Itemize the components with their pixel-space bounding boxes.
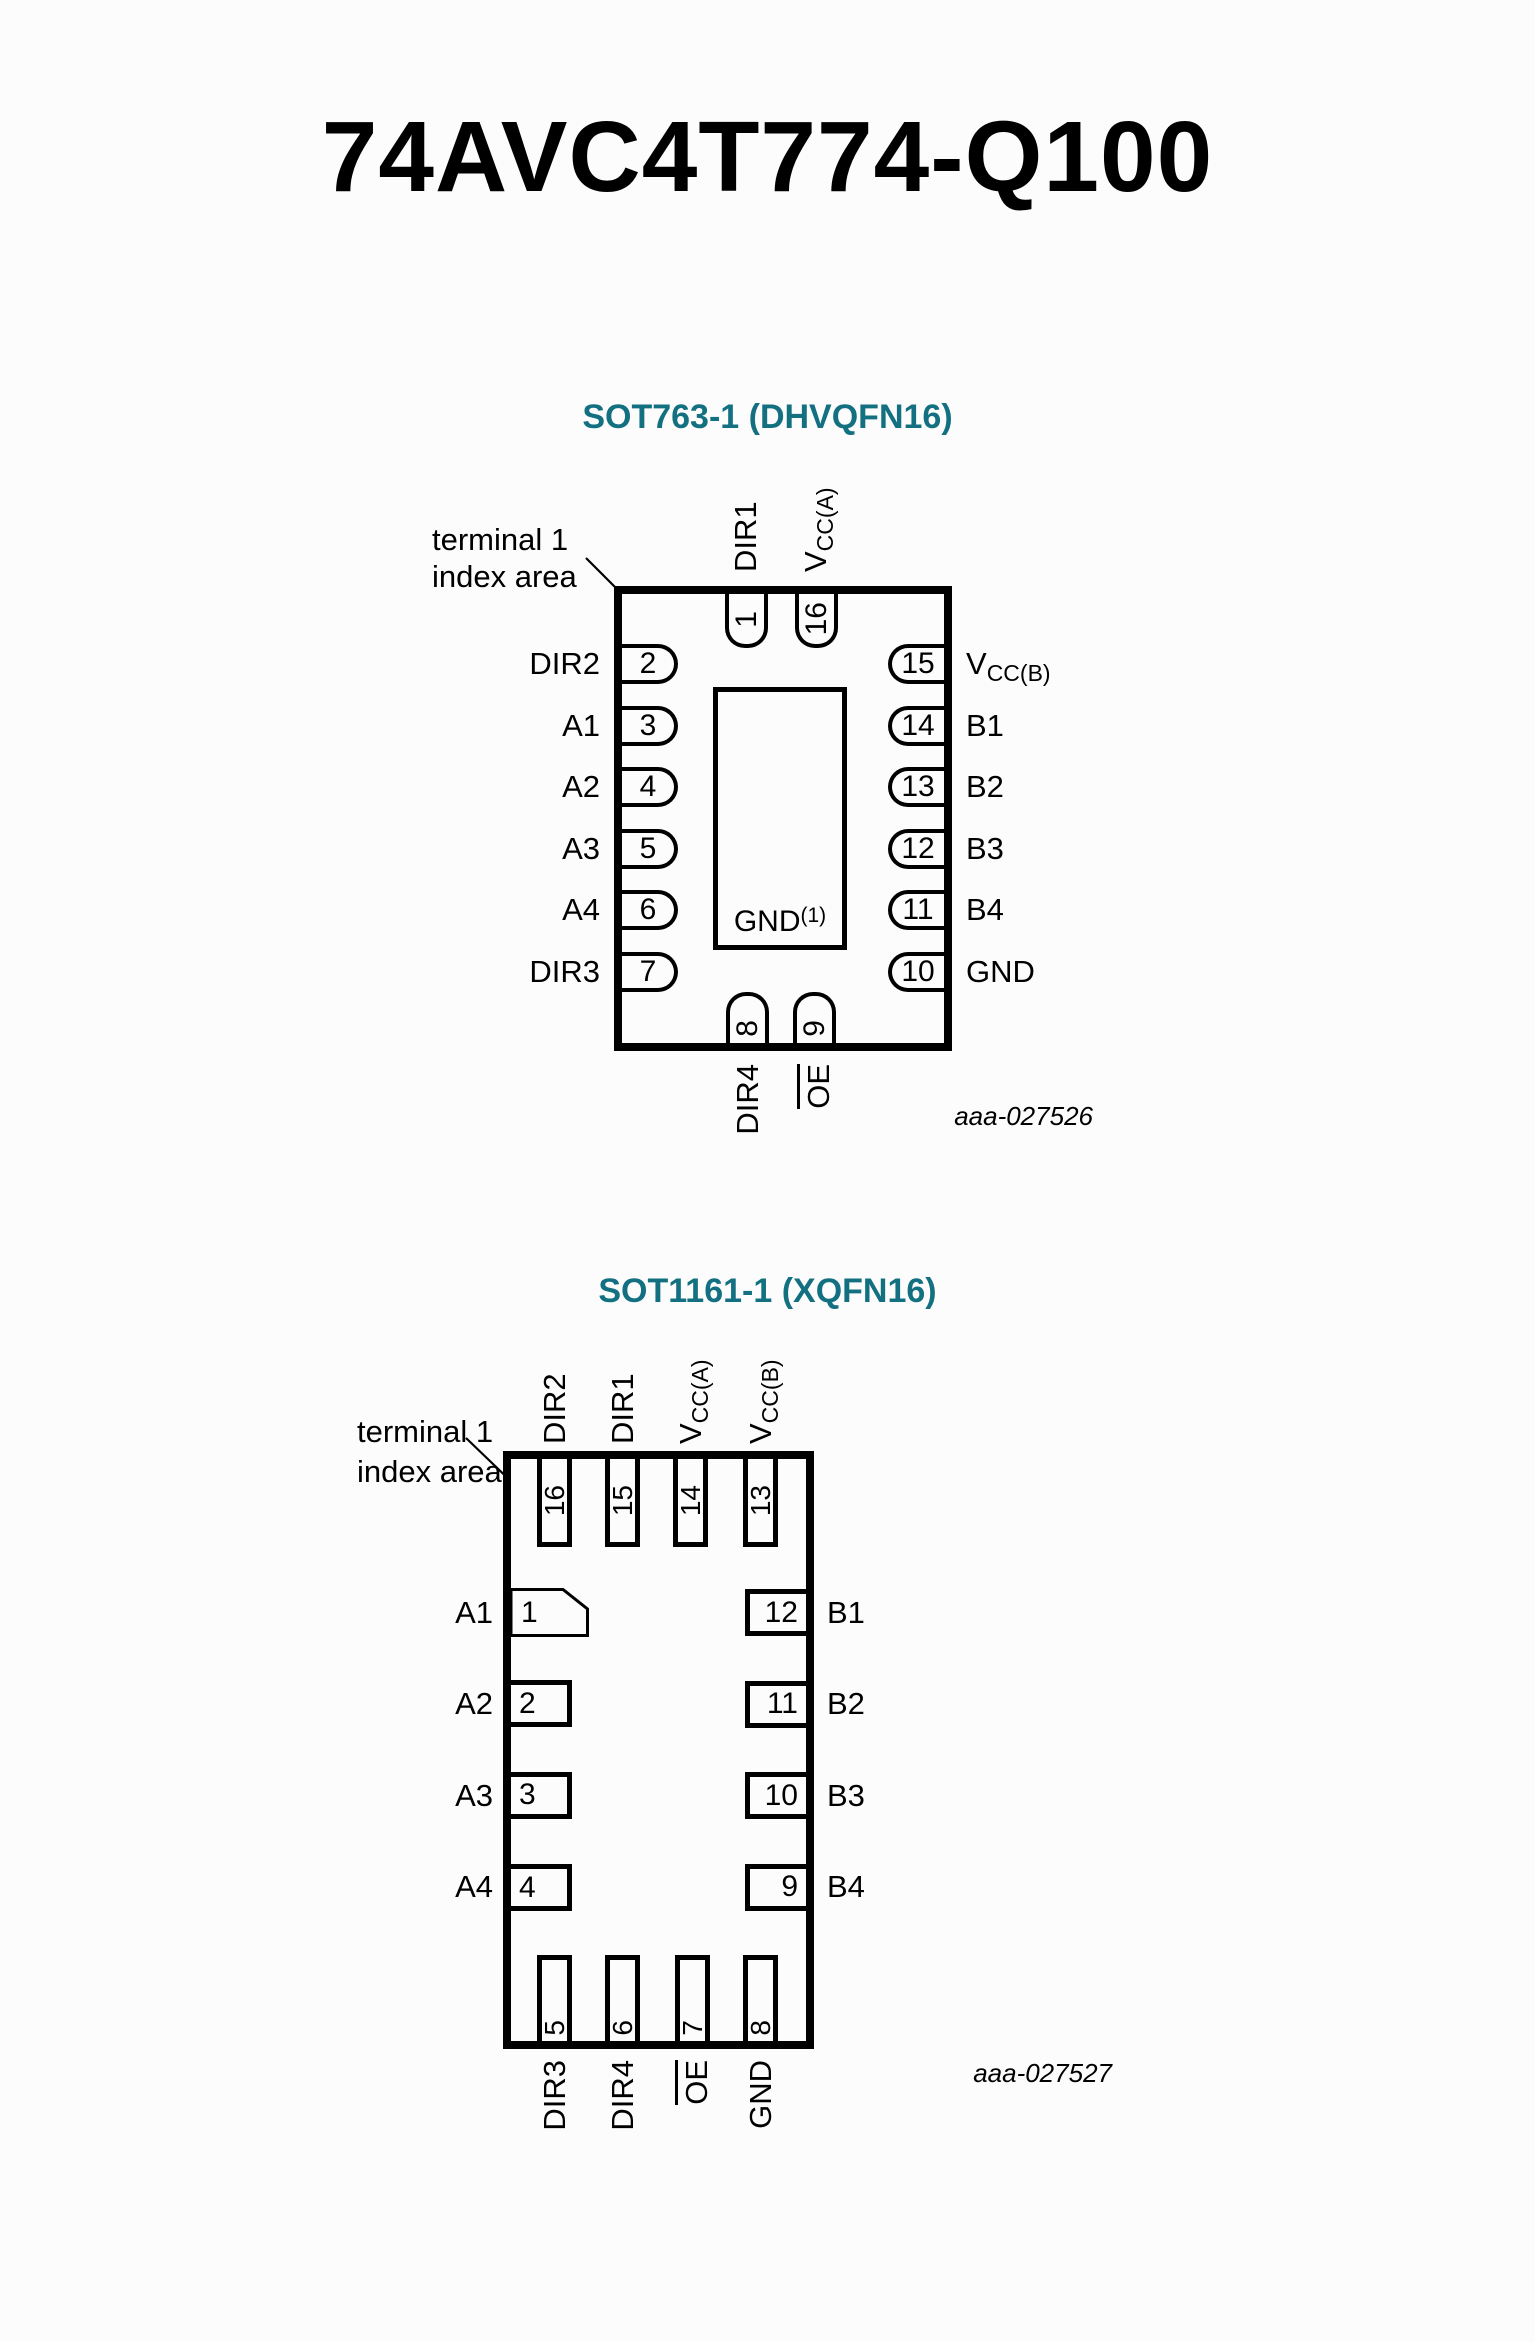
pin-15-number: 15 (901, 647, 934, 681)
label-gnd: GND (966, 953, 1035, 991)
pin-1-number: 1 (732, 611, 762, 628)
label-oe-text: OE (797, 1064, 836, 1109)
vcc-sub: CC(A) (812, 487, 838, 551)
pin-1: 1 (511, 1588, 589, 1637)
pin-6: 6 (605, 1955, 640, 2041)
label-dir4: DIR4 (605, 2060, 641, 2300)
pin-14-number: 14 (677, 1485, 705, 1516)
pin-15-number: 15 (609, 1485, 637, 1516)
pin-11-number: 11 (767, 1687, 798, 1721)
center-pad-label: GND(1) (718, 904, 842, 939)
pin-16-number: 16 (802, 602, 832, 635)
label-dir2: DIR2 (330, 645, 600, 683)
pin-2-number: 2 (640, 647, 657, 681)
label-dir3: DIR3 (537, 2060, 573, 2300)
pin-15: 15 (605, 1459, 640, 1547)
label-dir1: DIR1 (605, 1204, 641, 1444)
label-a3: A3 (253, 1777, 493, 1815)
pin-12: 12 (745, 1589, 806, 1636)
label-b3: B3 (966, 830, 1004, 868)
label-a2: A2 (253, 1685, 493, 1723)
package-outline-xqfn16: 16 15 14 13 1 2 3 4 12 11 10 9 5 6 7 (503, 1451, 814, 2049)
pin-16: 16 (537, 1459, 572, 1547)
pin-10: 10 (888, 952, 944, 992)
pin-3: 3 (622, 706, 678, 746)
index-note-line1: terminal 1 (432, 521, 577, 558)
vcc-base: V (798, 551, 833, 572)
label-b1: B1 (827, 1594, 865, 1632)
label-dir2: DIR2 (537, 1204, 573, 1444)
label-dir3-text: DIR3 (537, 2060, 572, 2131)
pin-14: 14 (888, 706, 944, 746)
figure1-heading: SOT763-1 (DHVQFN16) (0, 398, 1535, 437)
pin-11: 11 (888, 890, 944, 930)
vccb-base: V (743, 1423, 778, 1444)
figure2-code: aaa-027527 (862, 2058, 1112, 2089)
label-b1: B1 (966, 707, 1004, 745)
label-dir1: DIR1 (728, 332, 764, 572)
label-dir4-text: DIR4 (730, 1064, 765, 1135)
package-outline-dhvqfn16: 1 16 2 3 4 5 6 7 15 14 13 12 11 10 8 9 G… (614, 586, 952, 1051)
label-vcc-a: VCC(A) (798, 332, 834, 572)
pin-9-number: 9 (781, 1870, 798, 1904)
pin-9: 9 (745, 1864, 806, 1911)
pin-7: 7 (622, 952, 678, 992)
pin-11-number: 11 (902, 893, 933, 927)
pin-3-number: 3 (640, 709, 657, 743)
pin-13: 13 (888, 767, 944, 807)
pin-5-number: 5 (541, 2020, 569, 2036)
vcc-sub: CC(A) (687, 1359, 713, 1423)
pin-11: 11 (745, 1681, 806, 1728)
pin-12-number: 12 (901, 832, 934, 866)
label-a1: A1 (330, 707, 600, 745)
pin-12-number: 12 (765, 1596, 798, 1630)
pin-7-number: 7 (679, 2020, 707, 2036)
label-vcc-b: VCC(B) (966, 645, 1051, 683)
label-b4: B4 (966, 891, 1004, 929)
pin-6-number: 6 (640, 893, 657, 927)
label-gnd: GND (743, 2060, 779, 2300)
pin-6: 6 (622, 890, 678, 930)
vcc-base: V (673, 1423, 708, 1444)
label-b2: B2 (827, 1685, 865, 1723)
pin-13-number: 13 (747, 1485, 775, 1516)
pin-13: 13 (743, 1459, 778, 1547)
label-b4: B4 (827, 1868, 865, 1906)
pin-4-number: 4 (519, 1871, 536, 1905)
pin-5: 5 (622, 829, 678, 869)
pin-2: 2 (622, 644, 678, 684)
figure1-index-note: terminal 1 index area (432, 521, 577, 595)
vccb-sub: CC(B) (757, 1359, 783, 1423)
center-pad: GND(1) (713, 687, 847, 950)
label-oe-bar: OE (675, 2060, 711, 2300)
label-a4: A4 (253, 1868, 493, 1906)
pin-15: 15 (888, 644, 944, 684)
label-oe-text: OE (675, 2060, 714, 2105)
pin-5-number: 5 (640, 832, 657, 866)
pin-3: 3 (511, 1772, 572, 1819)
pin-14-number: 14 (901, 709, 934, 743)
label-vcc-a: VCC(A) (673, 1204, 709, 1444)
pin-12: 12 (888, 829, 944, 869)
label-gnd-text: GND (743, 2060, 778, 2129)
pin-8-number: 8 (747, 2020, 775, 2036)
pin-13-number: 13 (901, 770, 934, 804)
pin-1-number: 1 (521, 1588, 538, 1637)
label-dir1-text: DIR1 (728, 501, 763, 572)
pin-8: 8 (726, 992, 769, 1043)
label-a4: A4 (330, 891, 600, 929)
pin-1: 1 (725, 594, 768, 648)
pin-7-number: 7 (640, 955, 657, 989)
pin-5: 5 (537, 1955, 572, 2041)
pin-10: 10 (745, 1772, 806, 1819)
figure1-code: aaa-027526 (843, 1101, 1093, 1132)
label-vcc-b: VCC(B) (743, 1204, 779, 1444)
vccb-sub: CC(B) (987, 660, 1051, 686)
pin-16: 16 (795, 594, 838, 648)
pin-4-number: 4 (640, 770, 657, 804)
pin-2-number: 2 (519, 1687, 536, 1721)
pin-14: 14 (673, 1459, 708, 1547)
label-a2: A2 (330, 768, 600, 806)
pin-9: 9 (793, 992, 836, 1043)
pin-16-number: 16 (541, 1485, 569, 1516)
pin-7: 7 (675, 1955, 710, 2041)
label-dir2-text: DIR2 (537, 1373, 572, 1444)
page-title: 74AVC4T774-Q100 (0, 100, 1535, 215)
datasheet-page: 74AVC4T774-Q100 SOT763-1 (DHVQFN16) term… (0, 0, 1535, 2342)
label-oe-bar: OE (797, 1064, 833, 1304)
pin-2: 2 (511, 1680, 572, 1727)
label-b2: B2 (966, 768, 1004, 806)
label-b3: B3 (827, 1777, 865, 1815)
label-dir1-text: DIR1 (605, 1373, 640, 1444)
label-dir4-text: DIR4 (605, 2060, 640, 2131)
pin-4: 4 (511, 1864, 572, 1911)
center-pad-gnd: GND (734, 905, 801, 938)
pin-8: 8 (743, 1955, 778, 2041)
label-a1: A1 (253, 1594, 493, 1632)
label-a3: A3 (330, 830, 600, 868)
pin-10-number: 10 (765, 1779, 798, 1813)
center-pad-footnote: (1) (801, 904, 827, 927)
pin-6-number: 6 (609, 2020, 637, 2036)
index-note-line2: index area (432, 558, 577, 595)
pin-3-number: 3 (519, 1778, 536, 1812)
pin-8-number: 8 (733, 1020, 763, 1037)
pin-10-number: 10 (901, 955, 934, 989)
vccb-base: V (966, 646, 987, 681)
pin-9-number: 9 (800, 1020, 830, 1037)
label-dir3: DIR3 (330, 953, 600, 991)
pin-4: 4 (622, 767, 678, 807)
